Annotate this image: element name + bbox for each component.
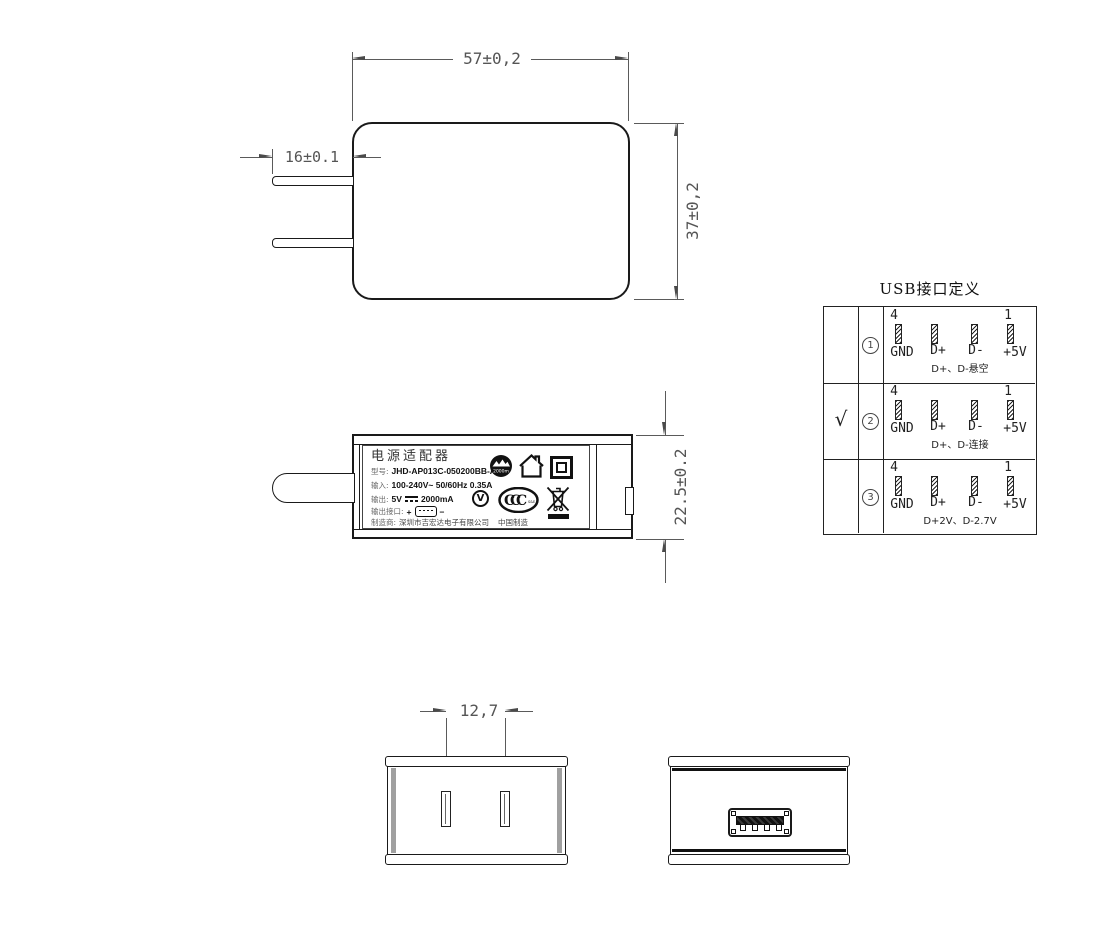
label-made-in: 中国制造 [498, 518, 528, 527]
dc-symbol-icon [405, 495, 418, 503]
extension-line [628, 52, 629, 121]
svg-text:C: C [516, 493, 527, 509]
pin-dplus-icon [931, 324, 938, 344]
adapter-technical-drawing: 57±0,2 37±0,2 16±0.1 [0, 0, 1100, 925]
table-row: 1 4 1 GND D+ D- +5V D+、D-悬空 [824, 307, 1036, 383]
row-number: 2 [862, 413, 879, 430]
label-output-key: 输出: [371, 495, 389, 504]
label-input-value: 100-240V~ 50/60Hz 0.35A [392, 480, 493, 490]
row-note: D+、D-悬空 [883, 364, 1037, 376]
label-maker-key: 制造商: [371, 518, 396, 527]
arrowhead [674, 286, 678, 299]
prong-slot-right [500, 791, 510, 827]
weee-bar [548, 514, 569, 519]
extension-line [636, 539, 684, 540]
svg-text:S&E: S&E [528, 500, 535, 504]
arrowhead [615, 56, 628, 60]
label-model-value: JHD-AP013C-050200BB-A [392, 466, 496, 476]
pin-number-1: 1 [998, 309, 1018, 323]
row-note: D+2V、D-2.7V [883, 516, 1037, 528]
label-output-voltage: 5V [392, 494, 402, 504]
arrowhead [674, 123, 678, 136]
pin-label-5v: +5V [993, 345, 1037, 360]
label-input-row: 输入: 100-240V~ 50/60Hz 0.35A [371, 480, 492, 490]
dimension-height: 37±0,2 [685, 168, 701, 254]
body-bottom-cap [668, 854, 850, 865]
arrowhead [352, 56, 365, 60]
label-input-key: 输入: [371, 481, 389, 490]
extension-line [634, 299, 684, 300]
pin-dplus-icon [931, 400, 938, 420]
dimension-line [677, 123, 678, 299]
extension-line [636, 435, 684, 436]
pin-gnd-icon [895, 400, 902, 420]
body-divider-line [596, 444, 597, 529]
svg-text:2000m: 2000m [493, 469, 509, 475]
altitude-2000m-icon: 2000m [489, 454, 513, 478]
usb-table-title: USB接口定义 [823, 278, 1037, 299]
label-output-row: 输出: 5V 2000mA [371, 494, 454, 504]
pin-dminus-icon [971, 324, 978, 344]
class-ii-insulation-icon [550, 456, 573, 479]
pin-dminus-icon [971, 476, 978, 496]
body-bottom-cap [385, 854, 568, 865]
body-edge-line [359, 444, 360, 529]
arrowhead [259, 154, 272, 158]
pin-label-5v: +5V [993, 497, 1037, 512]
pin-5v-icon [1007, 476, 1014, 496]
product-label: 电源适配器 型号: JHD-AP013C-050200BB-A 输入: 100-… [362, 445, 590, 529]
usb-a-port [728, 808, 792, 837]
pin-number-4: 4 [884, 461, 904, 475]
accent-band-top [672, 768, 846, 771]
label-title: 电源适配器 [371, 450, 451, 464]
pin-number-1: 1 [998, 461, 1018, 475]
pin-number-1: 1 [998, 385, 1018, 399]
weee-bin-icon [545, 485, 571, 513]
dimension-width: 57±0,2 [453, 51, 531, 67]
indoor-use-house-icon [518, 453, 545, 479]
plug-prong-bottom [272, 238, 354, 248]
pin-label-dminus: D- [954, 343, 998, 358]
body-face [387, 766, 566, 855]
pin-5v-icon [1007, 400, 1014, 420]
pin-dplus-icon [931, 476, 938, 496]
side-band-right [557, 768, 562, 853]
label-maker-value: 深圳市吉宏达电子有限公司 [399, 518, 489, 527]
usb-connector-icon [415, 506, 437, 517]
side-band-left [391, 768, 396, 853]
pin-number-4: 4 [884, 385, 904, 399]
label-port-minus: − [440, 507, 445, 517]
row-number: 1 [862, 337, 879, 354]
arrowhead [433, 708, 446, 712]
pin-5v-icon [1007, 324, 1014, 344]
pin-dminus-icon [971, 400, 978, 420]
dimension-line [505, 711, 533, 712]
plug-prong-side [272, 473, 355, 503]
dimension-line [353, 157, 381, 158]
row-note: D+、D-连接 [883, 440, 1037, 452]
pin-label-dminus: D- [954, 419, 998, 434]
label-port-row: 输出接口: + − [371, 506, 444, 517]
dimension-prong-length: 16±0.1 [276, 149, 348, 165]
extension-line [352, 52, 353, 121]
row-number: 3 [862, 489, 879, 506]
label-maker-row: 制造商: 深圳市吉宏达电子有限公司 中国制造 [371, 518, 528, 527]
pin-label-dminus: D- [954, 495, 998, 510]
extension-line [272, 149, 273, 174]
dimension-depth: 22.5±0.2 [673, 439, 689, 535]
adapter-body-front [352, 122, 630, 300]
arrowhead [662, 422, 666, 435]
dimension-prong-spacing: 12,7 [452, 703, 506, 719]
usb-pinout-table: 1 4 1 GND D+ D- +5V D+、D-悬空 √ 2 4 1 GND … [823, 306, 1037, 535]
accent-band-bottom [672, 849, 846, 852]
pin-number-4: 4 [884, 309, 904, 323]
label-model-key: 型号: [371, 467, 389, 476]
arrowhead [662, 539, 666, 552]
usb-port-side [625, 487, 634, 515]
pin-gnd-icon [895, 324, 902, 344]
table-row: 3 4 1 GND D+ D- +5V D+2V、D-2.7V [824, 459, 1036, 536]
label-port-key: 输出接口: [371, 507, 404, 516]
label-port-plus: + [407, 507, 412, 517]
row-check: √ [829, 407, 853, 431]
efficiency-mark-icon: V [472, 490, 489, 507]
ccc-mark-icon: C C C S&E [498, 487, 539, 513]
pin-label-5v: +5V [993, 421, 1037, 436]
label-model-row: 型号: JHD-AP013C-050200BB-A [371, 466, 496, 476]
body-edge-line [353, 529, 632, 530]
plug-prong-top [272, 176, 354, 186]
prong-slot-left [441, 791, 451, 827]
label-output-current: 2000mA [421, 494, 454, 504]
table-row: √ 2 4 1 GND D+ D- +5V D+、D-连接 [824, 383, 1036, 459]
pin-gnd-icon [895, 476, 902, 496]
